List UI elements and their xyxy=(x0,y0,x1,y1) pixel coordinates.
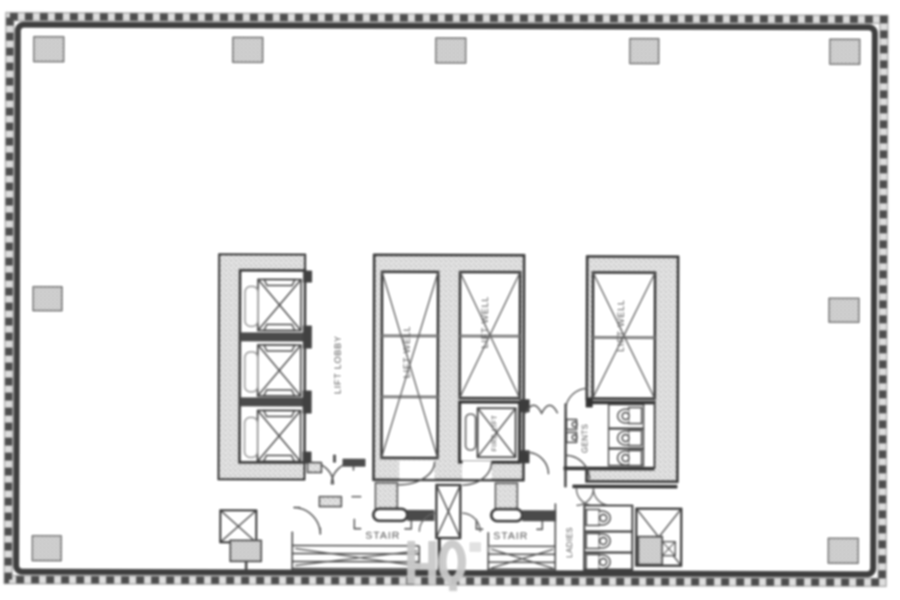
svg-text:FIRE LIFT: FIRE LIFT xyxy=(492,415,499,452)
svg-text:LIFT-WELL: LIFT-WELL xyxy=(480,296,490,349)
svg-text:STAIR: STAIR xyxy=(365,530,400,542)
svg-text:STAIR: STAIR xyxy=(493,530,528,542)
svg-text:LADIES: LADIES xyxy=(565,527,574,558)
svg-text:LIFT-WELL: LIFT-WELL xyxy=(616,299,626,352)
svg-text:GENTS: GENTS xyxy=(581,424,590,454)
svg-text:LIFT LOBBY: LIFT LOBBY xyxy=(333,335,343,394)
svg-text:LIFT-WELL: LIFT-WELL xyxy=(402,325,412,378)
